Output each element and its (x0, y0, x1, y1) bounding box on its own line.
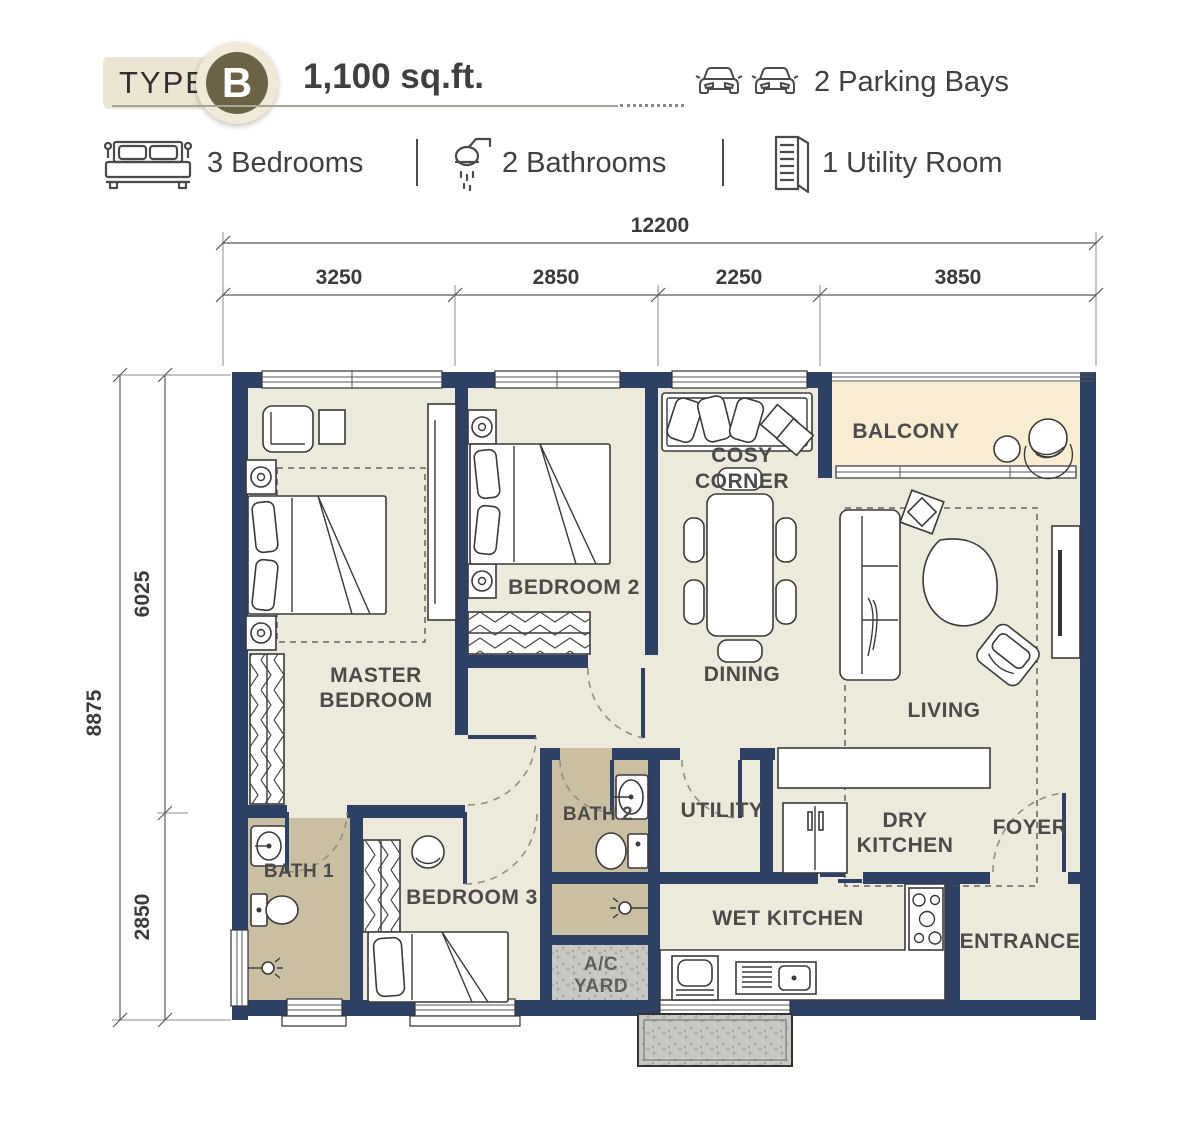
bedroom3-stool (412, 836, 444, 868)
svg-text:BEDROOM: BEDROOM (319, 689, 432, 712)
door-icon (772, 134, 814, 194)
bathrooms-label: 2 Bathrooms (502, 147, 666, 180)
room-label-balcony: BALCONY (852, 420, 959, 443)
dim-left-total: 8875 (83, 689, 106, 736)
bedrooms-label: 3 Bedrooms (207, 147, 363, 180)
room-label-bedroom3: BEDROOM 3 (406, 886, 538, 909)
room-label-bath1: BATH 1 (264, 861, 334, 882)
parking-info: 2 Parking Bays (694, 62, 1009, 102)
type-badge-circle: B (196, 42, 278, 124)
header-rule-dotted (620, 104, 684, 107)
dry-kitchen-counter (778, 748, 990, 788)
dim-left-seg-2: 2850 (131, 894, 154, 941)
kitchen-sink (736, 962, 816, 994)
outdoor-ledge (638, 1014, 792, 1066)
shower-icon (452, 134, 498, 194)
dim-top-total: 12200 (631, 214, 689, 237)
svg-text:YARD: YARD (574, 976, 628, 997)
master-dresser (428, 404, 456, 620)
bedroom3-wardrobe (363, 840, 400, 932)
dim-seg-2: 2850 (533, 266, 580, 289)
stove (909, 888, 943, 950)
dim-left-seg-1: 6025 (131, 570, 154, 617)
header-rule (112, 105, 618, 107)
parking-label: 2 Parking Bays (814, 66, 1009, 99)
room-label-bath2: BATH 2 (563, 804, 633, 825)
washing-machine (672, 956, 718, 1000)
balcony-railing (832, 373, 1094, 381)
floor-plan: 12200 3250 2850 2250 3850 8875 6025 2850 (0, 200, 1198, 1122)
tv-console (1052, 526, 1080, 658)
feature-divider (416, 139, 418, 186)
room-label-entrance: ENTRANCE (960, 930, 1081, 953)
room-label-dining: DINING (704, 663, 781, 686)
area-text: 1,100 sq.ft. (303, 57, 484, 97)
room-label-master-bedroom: MASTER (330, 664, 422, 687)
room-label-ac-yard: A/C (584, 954, 618, 975)
room-label-dry-kitchen: DRY (882, 809, 927, 832)
room-label-wet-kitchen: WET KITCHEN (712, 907, 863, 930)
fridge (783, 803, 847, 873)
bed-icon (100, 136, 196, 194)
bedroom3-bed (368, 932, 508, 1002)
room-label-utility: UTILITY (681, 799, 764, 822)
living-coffee-table (923, 539, 997, 626)
room-label-foyer: FOYER (993, 816, 1068, 839)
svg-text:CORNER: CORNER (695, 470, 789, 493)
room-label-cosy-corner: COSY (711, 444, 773, 467)
bedroom2-wardrobe (468, 612, 590, 654)
room-label-living: LIVING (907, 699, 980, 722)
svg-text:KITCHEN: KITCHEN (857, 834, 954, 857)
balcony-sliding-door (836, 466, 1076, 478)
living-sofa (840, 510, 900, 680)
dim-seg-3: 2250 (716, 266, 763, 289)
utility-room-label: 1 Utility Room (822, 147, 1003, 180)
type-label: TYPE (119, 65, 208, 101)
feature-divider (722, 139, 724, 186)
master-wardrobe (250, 654, 284, 804)
floor-plan-page: TYPE B 1,100 sq.ft. 2 Parking Bays (0, 0, 1198, 1122)
dim-seg-4: 3850 (935, 266, 982, 289)
room-label-bedroom2: BEDROOM 2 (508, 576, 640, 599)
car-icon (750, 62, 800, 102)
car-icon (694, 62, 744, 102)
dim-seg-1: 3250 (316, 266, 363, 289)
